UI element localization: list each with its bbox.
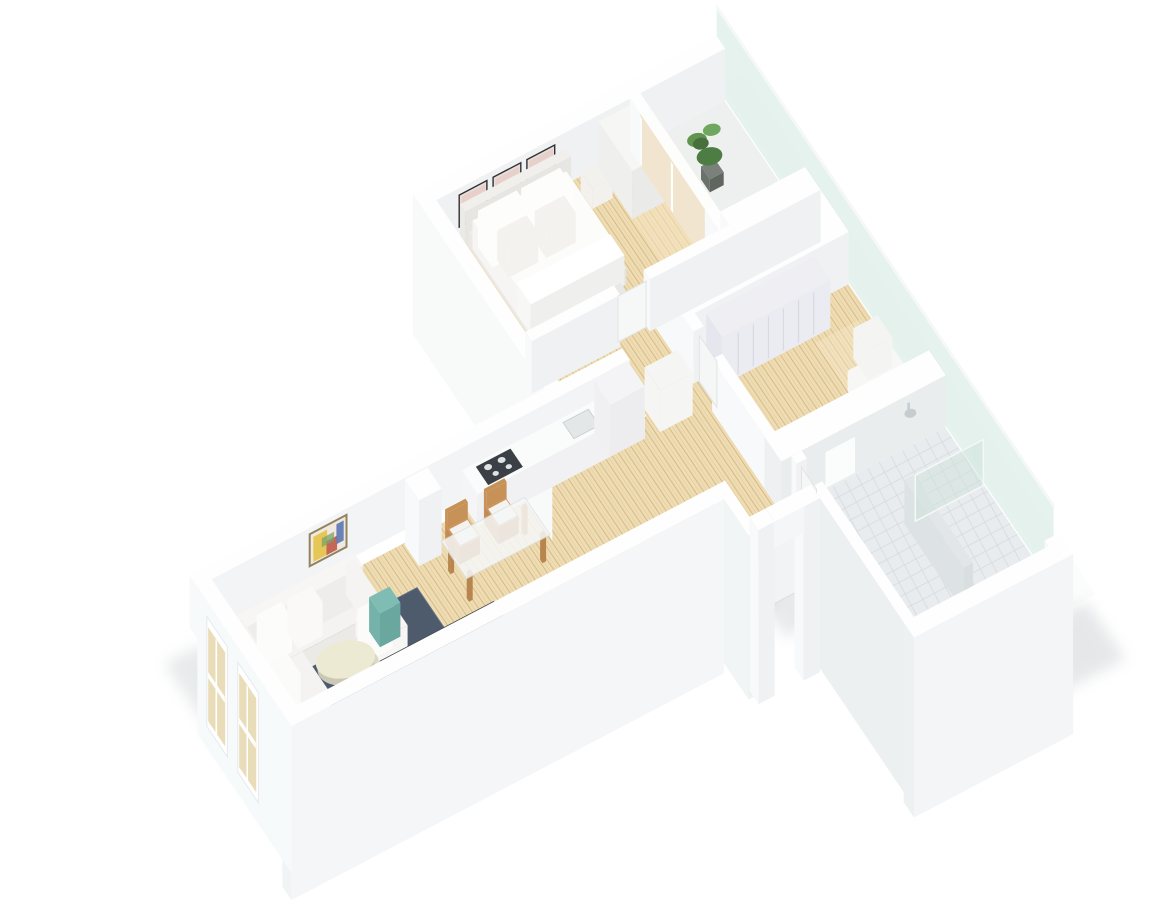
entry-wall-west-seg-south-face (759, 522, 775, 704)
living-art-blue (336, 520, 343, 544)
closet-wardrobe-seam-4 (783, 308, 784, 351)
closet-wardrobe-seam-1 (738, 332, 739, 375)
floorplan-canvas (0, 0, 1170, 923)
bedroom-south-wall-west-seg-west-face (525, 332, 531, 394)
closet-wardrobe-seam-3 (768, 316, 769, 359)
closet-wardrobe-seam-2 (753, 324, 754, 367)
closet-wardrobe-seam-6 (813, 292, 814, 335)
balcony-door-mullion-1 (671, 162, 673, 213)
entry-wall-west-seg-west-face (750, 517, 759, 704)
scene-root (164, 3, 1125, 900)
floorplan-3d-render (0, 0, 1170, 923)
balcony-door-mullion-2 (640, 116, 642, 167)
living-west-wall-south-face (292, 719, 306, 874)
bathroom-south-wall-west-face (904, 622, 914, 817)
entry-wall-east-seg-south-face (804, 498, 820, 681)
kitchen-column-south-face (419, 489, 442, 567)
closet-wardrobe-seam-5 (798, 300, 799, 343)
